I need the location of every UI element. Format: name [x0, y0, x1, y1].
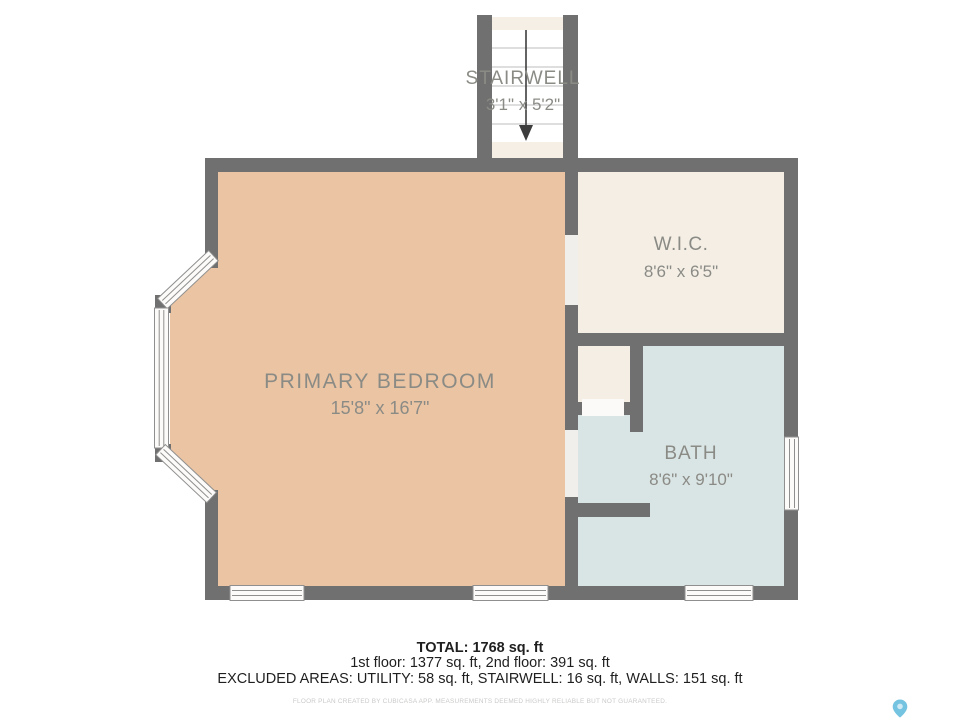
excluded-areas-text: EXCLUDED AREAS: UTILITY: 58 sq. ft, STAI…: [0, 672, 960, 687]
area-summary: TOTAL: 1768 sq. ft 1st floor: 1377 sq. f…: [0, 641, 960, 687]
stairwell-dims: 3'1" x 5'2": [486, 95, 560, 114]
floor-areas-text: 1st floor: 1377 sq. ft, 2nd floor: 391 s…: [0, 656, 960, 671]
alcove-door-stub-left: [565, 402, 582, 415]
wic-label: W.I.C.: [654, 234, 709, 255]
window-bay-left-vertical: [155, 308, 169, 448]
door-bedroom-bath: [565, 430, 578, 497]
room-alcove-floor: [578, 346, 630, 402]
stairwell-label: STAIRWELL: [466, 68, 581, 89]
top-wall: [205, 158, 798, 172]
window-bath-bottom: [685, 586, 753, 601]
window-bath-right: [785, 437, 799, 510]
floor-plan-page: STAIRWELL 3'1" x 5'2" W.I.C. 8'6" x 6'5"…: [0, 0, 960, 720]
map-pin-icon: [892, 699, 908, 718]
door-alcove: [582, 399, 624, 416]
left-wall-lower: [205, 494, 218, 600]
window-bedroom-bottom-left: [230, 586, 304, 601]
total-area-text: TOTAL: 1768 sq. ft: [0, 641, 960, 656]
disclaimer-text: FLOOR PLAN CREATED BY CUBICASA APP. MEAS…: [0, 698, 960, 705]
window-bedroom-bottom-right: [473, 586, 548, 601]
primary-bedroom-label: PRIMARY BEDROOM: [264, 370, 496, 393]
wall-alcove-right: [630, 346, 643, 432]
wic-dims: 8'6" x 6'5": [644, 262, 718, 281]
right-wall: [784, 158, 798, 600]
floor-plan-drawing: STAIRWELL 3'1" x 5'2" W.I.C. 8'6" x 6'5"…: [0, 0, 960, 720]
wall-bedroom-wic-upper: [565, 172, 578, 235]
bath-label: BATH: [664, 443, 717, 464]
door-bedroom-wic: [565, 235, 578, 305]
bath-partition-wall: [565, 503, 650, 517]
primary-bedroom-dims: 15'8" x 16'7": [331, 398, 430, 418]
alcove-door-stub-right: [624, 402, 643, 415]
wall-bedroom-bath-upper: [565, 346, 578, 430]
bath-dims: 8'6" x 9'10": [649, 470, 733, 489]
left-wall-upper: [205, 158, 218, 265]
wall-wic-bottom: [565, 333, 798, 346]
